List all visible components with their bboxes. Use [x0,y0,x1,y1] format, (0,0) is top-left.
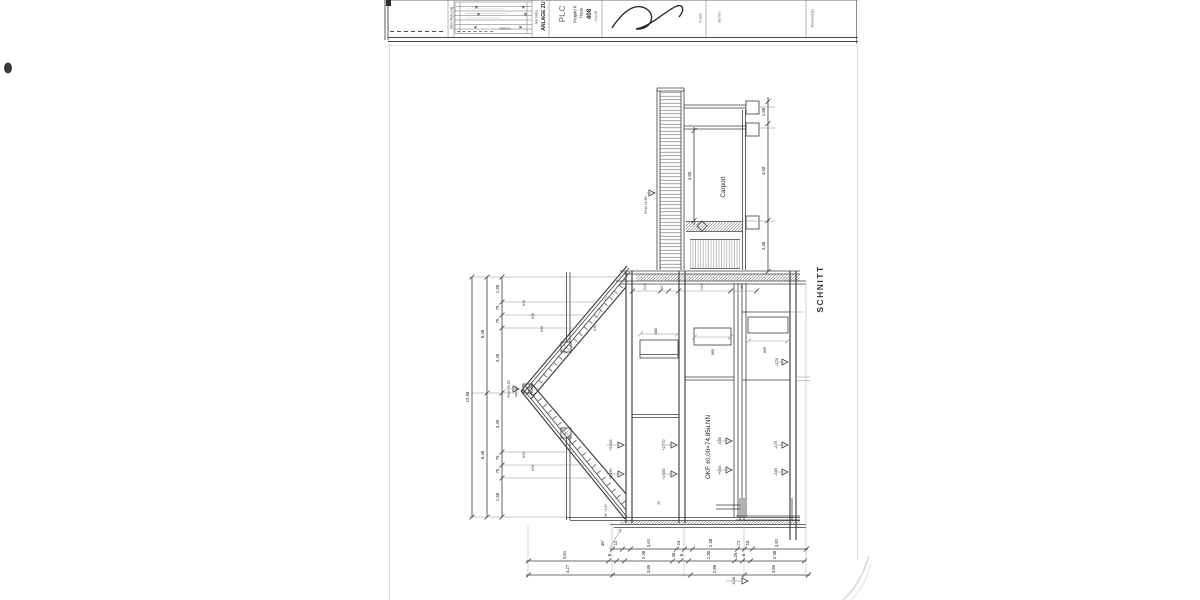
dim-value: 865 [711,349,715,355]
dim-value: 8 [607,553,612,556]
hatched-wall [660,91,681,270]
fold-mark [386,0,391,6]
alle-masse-note: Alle Maße [534,10,538,25]
dim-value: 1,90 [495,284,500,293]
baubeteiligte-label: Baubeteiligte [810,9,814,28]
level-value: -2,75 [774,441,778,449]
dim-value: 4,50 [687,171,692,180]
roof-gable: First +8,25 8/16 45° OK +1,63 [505,266,630,549]
project-line: Haus [579,8,584,18]
eave-note: OK +1,63 [604,504,608,518]
post-section [746,123,759,136]
dim-value: 3,01 [643,284,647,290]
dim-value: 12 [613,540,618,545]
level-value: +5,450 [609,468,613,479]
page-curl [843,556,869,600]
sheet-edges [4,0,871,600]
post-section [746,101,759,114]
signature-scribble [612,6,683,29]
level-value: -3,05 [774,468,778,476]
bauherr-label: Bauherr [717,10,721,22]
dim-value: 3,48 [761,241,766,250]
dim-value: 3,49 [495,353,500,362]
bottom-dim-rows: 12 3,61 24 2,38 71 16 3,81 3,61 8 2,38 3… [526,283,811,585]
batten-ticks [530,280,626,394]
blueprint-scan: Index Änderung × × × × × × Verteiler All… [0,0,1200,600]
index-label: Index Änderung [450,7,454,30]
small-dim: 26 [657,501,661,505]
carport-area: Carport 1,88 4,50 3,48 4,50 First +4,50 [644,88,775,274]
dim-value: 36 [671,552,676,557]
dim-value: 1,50 [495,492,500,501]
dim-value: 2,38 [772,550,777,559]
lightwell-window [748,317,788,333]
building-section: 885 865 865 [523,271,810,540]
dim-value: 8 [679,553,684,556]
level-value: -0,50 [718,437,722,445]
project-line: Projekt K [573,5,578,23]
logo-block: PLC Projekt K Haus 408 Geprüft [557,5,598,23]
timber-note: 8/16 [540,326,544,332]
timber-note: 8/16 [531,465,535,471]
window-opening [694,328,731,345]
level-value: +5,525 [609,439,613,450]
carport-label: Carport [720,176,727,197]
level-value: +0,00 [718,465,722,474]
dim-value: 4,50 [761,166,766,175]
dim-value: 3,61 [562,550,567,559]
dim-value: 92 [660,285,664,289]
dim-value: 1,88 [761,107,766,116]
dim-value: 75 [495,318,500,323]
top-dim-row: 3,01 92 2,61 86 [630,284,759,294]
title-block: Index Änderung × × × × × × Verteiler All… [390,0,814,37]
level-marker-ridge: First +8,25 [505,380,519,397]
dim-value: 2,86 [712,564,717,573]
verteiler-table: × × × × × × Verteiler [455,0,532,37]
dim-value: 3,85 [771,564,776,573]
level-marker-foundation: -6,28 [726,577,748,585]
projekt-label: Projekt [698,13,702,23]
level-value: First +8,25 [507,380,511,397]
dim-value: 3,85 [646,564,651,573]
level-marker-neighbor: First +4,50 [644,190,655,214]
check-mark: × [519,25,522,31]
dim-value: 26 [733,552,738,557]
dim-value: 71 [736,540,741,545]
company-logo: PLC [557,6,567,23]
small-caption: Geprüft [594,11,598,22]
verteiler-label: Verteiler [498,27,511,31]
dim-value: 6,48 [480,329,485,338]
level-value: +2,655 [662,468,666,479]
dim-value: 86 [740,285,744,289]
level-value: +2,770 [662,439,666,450]
check-mark: × [524,12,527,18]
scanned-drawing-page: Index Änderung × × × × × × Verteiler All… [0,0,1200,600]
project-number: 408 [586,8,593,19]
anlage-stamp: ANLAGE ZU [541,1,547,31]
dim-value: 2,38 [708,538,713,547]
check-mark: × [477,12,480,18]
dim-value: 885 [654,328,658,334]
dim-value: 75 [495,305,500,310]
section-title: SCHNITT [815,265,825,312]
post-section [746,216,759,229]
level-value: -6,28 [732,577,736,585]
angle-note: 45° [600,539,605,546]
dim-value: 6,48 [480,450,485,459]
level-value: -2,70 [775,358,779,366]
dim-value: 24 [676,540,681,545]
timber-note: 8/16 [522,300,526,306]
dim-value: 8 [741,553,746,556]
dim-value: 75 [495,468,500,473]
check-mark: × [475,5,478,11]
dim-value: 2,38 [641,550,646,559]
dim-value: 2,61 [700,284,704,290]
carport-dim-left: 4,50 [687,127,697,225]
dim-value: 865 [763,347,767,353]
carport-dim-right: 1,88 4,50 3,48 [742,97,775,274]
window-opening [640,340,678,358]
dim-value: 3,49 [495,419,500,428]
check-mark: × [474,25,477,31]
foundation-footing [716,498,800,520]
dim-value: 4,27 [565,564,570,573]
level-value: First +4,50 [644,196,648,213]
dim-value: 2,30 [706,550,711,559]
dim-value: 16 [745,540,750,545]
dim-value: 75 [495,455,500,460]
scan-speck [4,63,12,74]
timber-note: 8/16 [522,452,526,458]
rafter-note: 8/16 [593,325,597,331]
timber-note: 8/16 [531,313,535,319]
check-mark: × [522,5,525,11]
okf-label: OKF ±0,00=74,85ü.NN [705,414,712,479]
dim-value: 3,81 [774,538,779,547]
dim-value: 3,61 [646,538,651,547]
dim-value: 12,98 [465,391,470,402]
